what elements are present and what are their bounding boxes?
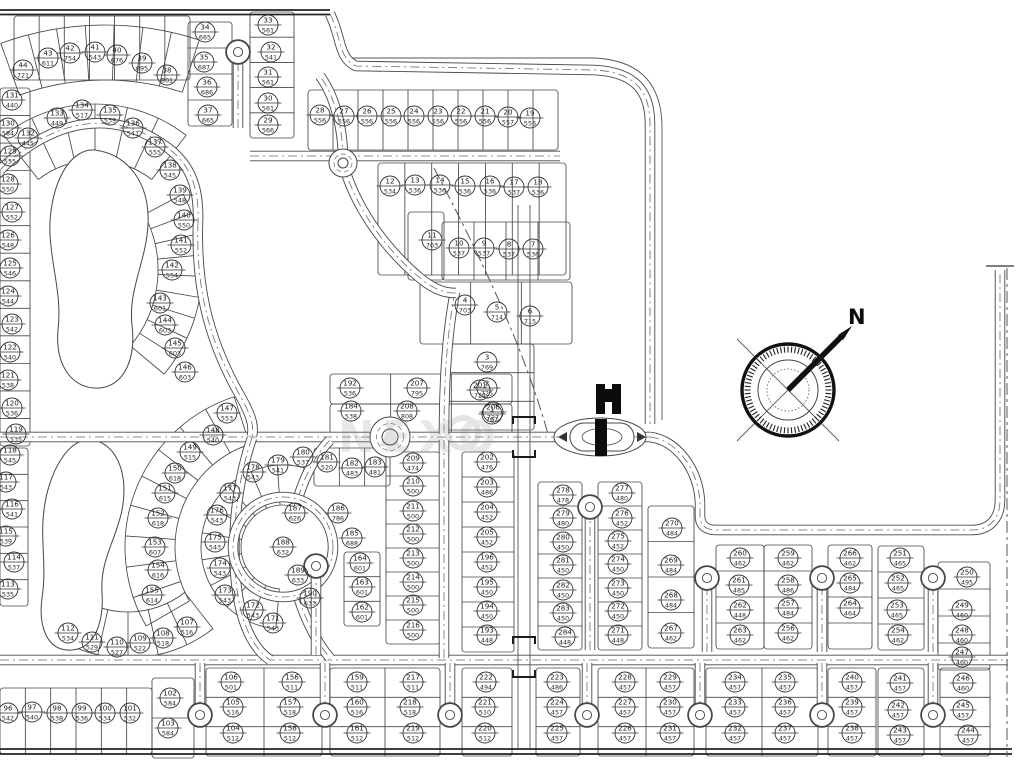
svg-text:556: 556 [432, 118, 444, 126]
lot-label: 42754 [57, 43, 84, 63]
svg-text:457: 457 [894, 737, 906, 745]
svg-text:240: 240 [845, 673, 859, 682]
svg-text:512: 512 [351, 735, 363, 743]
svg-text:543: 543 [219, 597, 231, 605]
lot-label: 32541 [258, 42, 285, 62]
svg-text:500: 500 [407, 536, 419, 544]
svg-text:548: 548 [2, 242, 14, 250]
lot-label: 270484 [659, 518, 686, 538]
svg-text:272: 272 [611, 602, 625, 611]
svg-text:537: 537 [453, 250, 465, 258]
svg-text:450: 450 [557, 592, 569, 600]
lot-label: 281450 [550, 555, 577, 575]
svg-text:486: 486 [782, 587, 794, 595]
canal-layer [513, 205, 535, 748]
svg-text:516: 516 [227, 709, 239, 717]
svg-text:13: 13 [410, 176, 419, 185]
svg-text:39: 39 [137, 54, 147, 63]
svg-text:686: 686 [201, 89, 213, 97]
svg-text:518: 518 [404, 709, 416, 717]
lot-label: 141552 [168, 235, 195, 255]
lot-label: 234457 [722, 672, 749, 692]
svg-text:202: 202 [480, 453, 494, 462]
lot-label: 122540 [0, 342, 24, 362]
lot-label: 272450 [605, 601, 632, 621]
svg-text:176: 176 [210, 506, 224, 515]
svg-text:518: 518 [157, 640, 169, 648]
svg-text:537: 537 [297, 459, 309, 467]
svg-text:553: 553 [221, 415, 233, 423]
lot-label: 213500 [400, 548, 427, 568]
svg-text:154: 154 [151, 561, 165, 570]
svg-text:31: 31 [263, 68, 272, 77]
lot-label: 10537 [446, 238, 473, 258]
svg-text:450: 450 [612, 566, 624, 574]
lot-label: 217511 [400, 672, 427, 692]
svg-text:542: 542 [6, 326, 18, 334]
svg-text:536: 536 [532, 189, 544, 197]
svg-text:536: 536 [409, 187, 421, 195]
svg-text:129: 129 [3, 147, 17, 156]
svg-text:242: 242 [891, 701, 905, 710]
lot-label: 11703 [419, 230, 446, 250]
lot-label: 269484 [658, 555, 685, 575]
svg-text:12: 12 [385, 177, 394, 186]
svg-text:35: 35 [199, 53, 208, 62]
svg-text:536: 536 [434, 187, 446, 195]
svg-text:195: 195 [480, 578, 494, 587]
lot-label: 222494 [473, 672, 500, 692]
svg-text:16: 16 [485, 177, 495, 186]
svg-text:150: 150 [168, 464, 182, 473]
lot-label: 258486 [775, 575, 802, 595]
svg-text:465: 465 [891, 612, 903, 620]
svg-text:256: 256 [781, 624, 795, 633]
svg-text:484: 484 [782, 610, 794, 618]
svg-text:457: 457 [962, 737, 974, 745]
svg-text:201: 201 [473, 381, 487, 390]
lot-label: 282450 [550, 580, 577, 600]
svg-text:518: 518 [284, 709, 296, 717]
lot-label: 106501 [218, 672, 245, 692]
svg-text:6: 6 [528, 307, 533, 316]
svg-text:536: 536 [6, 410, 18, 418]
svg-text:220: 220 [478, 724, 492, 733]
svg-text:561: 561 [262, 79, 274, 87]
svg-text:450: 450 [557, 615, 569, 623]
svg-text:541: 541 [265, 54, 277, 62]
svg-text:244: 244 [961, 726, 975, 735]
lot-label: 227457 [612, 697, 639, 717]
lot-label: 245457 [950, 700, 977, 720]
lot-label: 103584 [155, 718, 182, 738]
svg-text:180: 180 [296, 448, 310, 457]
svg-text:457: 457 [779, 735, 791, 743]
svg-text:457: 457 [846, 684, 858, 692]
svg-text:21: 21 [480, 107, 489, 116]
svg-text:462: 462 [665, 635, 677, 643]
svg-text:715: 715 [524, 318, 536, 326]
svg-text:101: 101 [123, 704, 137, 713]
svg-text:142: 142 [165, 261, 179, 270]
svg-text:448: 448 [612, 637, 624, 645]
svg-text:703: 703 [426, 242, 438, 250]
svg-text:527: 527 [111, 649, 123, 657]
svg-text:25: 25 [386, 107, 395, 116]
svg-text:260: 260 [733, 549, 747, 558]
lot-label: 7536 [520, 239, 547, 259]
lot-label: 176543 [204, 505, 231, 525]
svg-text:539: 539 [0, 538, 12, 546]
svg-text:703: 703 [459, 307, 471, 315]
svg-text:17: 17 [509, 178, 518, 187]
svg-text:611: 611 [42, 60, 54, 68]
svg-text:462: 462 [734, 637, 746, 645]
svg-text:96: 96 [3, 704, 13, 713]
svg-text:283: 283 [556, 604, 570, 613]
svg-text:534: 534 [62, 635, 74, 643]
lot-label: 252465 [885, 573, 912, 593]
svg-text:279: 279 [556, 509, 570, 518]
svg-text:141: 141 [174, 236, 188, 245]
svg-text:276: 276 [615, 509, 629, 518]
svg-text:259: 259 [781, 549, 795, 558]
svg-text:192: 192 [343, 379, 357, 388]
svg-text:42: 42 [65, 44, 74, 53]
svg-text:264: 264 [843, 599, 857, 608]
svg-text:543: 543 [247, 612, 259, 620]
lot-label: 188632 [270, 537, 297, 557]
lot-label: 194450 [474, 601, 501, 621]
svg-text:601: 601 [356, 614, 368, 622]
svg-text:615: 615 [159, 495, 171, 503]
lot-label: 116541 [0, 499, 26, 519]
svg-text:128: 128 [1, 175, 15, 184]
lot-label: 22556 [448, 106, 475, 126]
svg-text:543: 543 [214, 570, 226, 578]
svg-text:462: 462 [844, 560, 856, 568]
lot-label: 248460 [949, 625, 976, 645]
svg-text:632: 632 [277, 549, 289, 557]
svg-text:543: 543 [247, 474, 259, 482]
svg-text:37: 37 [203, 106, 212, 115]
svg-text:515: 515 [184, 454, 196, 462]
svg-text:452: 452 [481, 539, 493, 547]
svg-text:552: 552 [175, 247, 187, 255]
svg-text:448: 448 [481, 637, 493, 645]
lot-label: 283450 [550, 603, 577, 623]
svg-text:3: 3 [485, 353, 490, 362]
svg-text:20: 20 [503, 108, 513, 117]
svg-text:465: 465 [892, 585, 904, 593]
svg-text:225: 225 [550, 724, 564, 733]
lot-label: 260462 [727, 548, 754, 568]
svg-text:486: 486 [481, 489, 493, 497]
svg-text:540: 540 [4, 354, 16, 362]
svg-text:32: 32 [266, 43, 275, 52]
lot-label: 279480 [550, 508, 577, 528]
svg-text:601: 601 [354, 565, 366, 573]
svg-text:500: 500 [407, 584, 419, 592]
svg-text:282: 282 [556, 581, 570, 590]
svg-text:115: 115 [0, 527, 13, 536]
svg-text:11: 11 [427, 231, 436, 240]
svg-text:450: 450 [612, 613, 624, 621]
svg-text:243: 243 [893, 726, 907, 735]
svg-text:122: 122 [3, 343, 17, 352]
lot-label: 224457 [544, 697, 571, 717]
lot-label: 146603 [172, 362, 199, 382]
svg-text:113: 113 [1, 580, 15, 589]
svg-text:43: 43 [43, 49, 52, 58]
svg-text:556: 556 [408, 118, 420, 126]
entrance-group [554, 384, 646, 456]
lot-label: 214500 [400, 572, 427, 592]
svg-text:457: 457 [729, 684, 741, 692]
svg-text:245: 245 [956, 701, 970, 710]
svg-text:235: 235 [778, 673, 792, 682]
lot-label: 185688 [339, 528, 366, 548]
svg-text:185: 185 [345, 529, 359, 538]
lake [50, 150, 148, 388]
lot-label: 249460 [949, 600, 976, 620]
lot-label: 271448 [605, 625, 632, 645]
svg-text:607: 607 [149, 549, 161, 557]
svg-text:187: 187 [288, 504, 302, 513]
svg-text:561: 561 [262, 105, 274, 113]
svg-text:231: 231 [663, 724, 677, 733]
lot-label: 44721 [10, 60, 37, 80]
svg-text:464: 464 [844, 610, 856, 618]
svg-text:109: 109 [133, 634, 147, 643]
svg-text:601: 601 [356, 589, 368, 597]
lot-label: 14536 [427, 175, 454, 195]
svg-text:460: 460 [956, 612, 968, 620]
svg-text:457: 457 [892, 712, 904, 720]
svg-text:266: 266 [843, 549, 857, 558]
lot-label: 223486 [544, 672, 571, 692]
svg-text:8: 8 [507, 240, 512, 249]
svg-text:457: 457 [779, 709, 791, 717]
north-arrow-icon [788, 334, 844, 390]
svg-text:28: 28 [315, 106, 325, 115]
lot-label: 238457 [839, 723, 866, 743]
svg-text:695: 695 [136, 65, 148, 73]
svg-text:258: 258 [781, 576, 795, 585]
svg-text:211: 211 [406, 502, 420, 511]
svg-text:543: 543 [0, 484, 12, 492]
svg-text:7: 7 [531, 240, 536, 249]
svg-text:550: 550 [2, 186, 14, 194]
svg-text:161: 161 [350, 724, 364, 733]
svg-text:584: 584 [2, 130, 14, 138]
svg-text:457: 457 [729, 709, 741, 717]
svg-text:548: 548 [174, 197, 186, 205]
svg-text:537: 537 [503, 251, 515, 259]
lot-label: 98538 [44, 703, 71, 723]
svg-text:38: 38 [162, 66, 172, 75]
svg-text:462: 462 [782, 560, 794, 568]
svg-text:537: 537 [8, 564, 20, 572]
svg-text:254: 254 [891, 626, 905, 635]
svg-text:603: 603 [179, 374, 191, 382]
svg-text:557: 557 [502, 119, 514, 127]
svg-text:4: 4 [463, 296, 468, 305]
svg-text:175: 175 [208, 533, 222, 542]
lot-label: 274450 [605, 554, 632, 574]
svg-text:217: 217 [406, 673, 420, 682]
lot-label: 220512 [472, 723, 499, 743]
svg-text:540: 540 [26, 714, 38, 722]
svg-text:543: 543 [209, 544, 221, 552]
svg-text:556: 556 [338, 118, 350, 126]
lot-label: 114537 [1, 552, 28, 572]
svg-text:253: 253 [890, 601, 904, 610]
svg-text:98: 98 [52, 704, 62, 713]
svg-text:724: 724 [474, 392, 486, 400]
svg-text:542: 542 [2, 715, 14, 723]
svg-text:106: 106 [224, 673, 238, 682]
lot-label: 113535 [0, 579, 22, 599]
svg-text:754: 754 [64, 55, 76, 63]
svg-text:228: 228 [618, 673, 632, 682]
svg-text:550: 550 [178, 222, 190, 230]
lot-label: 43611 [35, 48, 62, 68]
svg-text:462: 462 [782, 635, 794, 643]
svg-text:123: 123 [5, 315, 19, 324]
svg-text:535: 535 [10, 436, 22, 444]
svg-text:450: 450 [557, 544, 569, 552]
svg-text:188: 188 [276, 538, 290, 547]
svg-text:144: 144 [158, 316, 172, 325]
svg-text:130: 130 [1, 119, 15, 128]
svg-text:236: 236 [778, 698, 792, 707]
svg-text:23: 23 [433, 107, 442, 116]
svg-text:536: 536 [527, 251, 539, 259]
lot-label: 195450 [474, 577, 501, 597]
svg-text:457: 457 [846, 709, 858, 717]
svg-text:145: 145 [168, 339, 182, 348]
svg-text:223: 223 [550, 673, 564, 682]
lot-label: 24556 [401, 106, 428, 126]
svg-text:457: 457 [619, 684, 631, 692]
svg-text:152: 152 [151, 509, 165, 518]
svg-text:280: 280 [556, 533, 570, 542]
svg-text:269: 269 [664, 556, 678, 565]
svg-text:213: 213 [406, 549, 420, 558]
svg-text:249: 249 [955, 601, 969, 610]
lot-label: 229457 [657, 672, 684, 692]
lot-label: 117543 [0, 472, 20, 492]
lot-label: 97540 [19, 702, 46, 722]
svg-text:541: 541 [127, 130, 139, 138]
svg-text:186: 186 [331, 504, 345, 513]
svg-text:29: 29 [263, 116, 273, 125]
svg-text:457: 457 [619, 709, 631, 717]
svg-text:116: 116 [5, 500, 19, 509]
lot-label: 39695 [129, 53, 156, 73]
svg-text:552: 552 [6, 214, 18, 222]
site-plan-canvas: NNEXO44721436114275441543406763969538801… [0, 0, 1024, 768]
lakes-layer [41, 150, 148, 650]
svg-text:107: 107 [180, 618, 194, 627]
svg-text:232: 232 [728, 724, 742, 733]
guard-post-icon [595, 419, 607, 456]
svg-text:535: 535 [2, 591, 14, 599]
lot-label: 139548 [167, 185, 194, 205]
lot-label: 225457 [544, 723, 571, 743]
svg-text:537: 537 [478, 250, 490, 258]
lot-label: 127552 [0, 202, 26, 222]
svg-text:484: 484 [666, 530, 678, 538]
lot-label: 19556 [517, 108, 544, 128]
lot-label: 157518 [277, 697, 304, 717]
svg-text:676: 676 [111, 57, 123, 65]
svg-text:117: 117 [0, 473, 13, 482]
svg-text:457: 457 [664, 735, 676, 743]
svg-text:529: 529 [86, 644, 98, 652]
svg-text:543: 543 [211, 517, 223, 525]
svg-text:278: 278 [556, 486, 570, 495]
svg-text:105: 105 [226, 698, 240, 707]
svg-text:135: 135 [103, 106, 117, 115]
svg-text:522: 522 [134, 645, 146, 653]
lot-label: 101532 [117, 703, 144, 723]
lot-label: 12534 [377, 176, 404, 196]
lot-label: 163601 [349, 577, 376, 597]
svg-text:257: 257 [781, 599, 795, 608]
svg-text:214: 214 [406, 573, 420, 582]
svg-text:554: 554 [166, 272, 178, 280]
svg-text:462: 462 [734, 560, 746, 568]
svg-text:139: 139 [173, 186, 187, 195]
lot-label: 41543 [82, 42, 109, 62]
svg-text:124: 124 [1, 287, 15, 296]
lot-label: 142554 [159, 260, 186, 280]
lot-label: 196452 [474, 552, 501, 572]
svg-text:181: 181 [320, 453, 334, 462]
svg-text:183: 183 [368, 458, 382, 467]
svg-text:24: 24 [409, 107, 419, 116]
svg-text:30: 30 [263, 94, 273, 103]
svg-text:448: 448 [559, 639, 571, 647]
svg-text:153: 153 [148, 538, 162, 547]
lot-label: 242457 [885, 700, 912, 720]
svg-text:146: 146 [178, 363, 192, 372]
svg-text:138: 138 [163, 161, 177, 170]
svg-text:262: 262 [733, 601, 747, 610]
lot-label: 38801 [154, 65, 181, 85]
lot-label: 100534 [92, 703, 119, 723]
svg-text:100: 100 [98, 704, 112, 713]
svg-text:112: 112 [61, 624, 75, 633]
lot-label: 151615 [152, 483, 179, 503]
lot-label: 268484 [658, 590, 685, 610]
lot-label: 251465 [887, 548, 914, 568]
svg-text:114: 114 [7, 553, 21, 562]
svg-text:440: 440 [6, 102, 18, 110]
svg-text:203: 203 [480, 478, 494, 487]
svg-text:127: 127 [5, 203, 19, 212]
svg-text:545: 545 [164, 172, 176, 180]
svg-text:485: 485 [733, 587, 745, 595]
svg-text:273: 273 [611, 579, 625, 588]
svg-text:233: 233 [728, 698, 742, 707]
lot-label: 6715 [517, 306, 544, 326]
svg-text:207: 207 [410, 379, 424, 388]
svg-text:543: 543 [224, 495, 236, 503]
svg-text:500: 500 [407, 632, 419, 640]
